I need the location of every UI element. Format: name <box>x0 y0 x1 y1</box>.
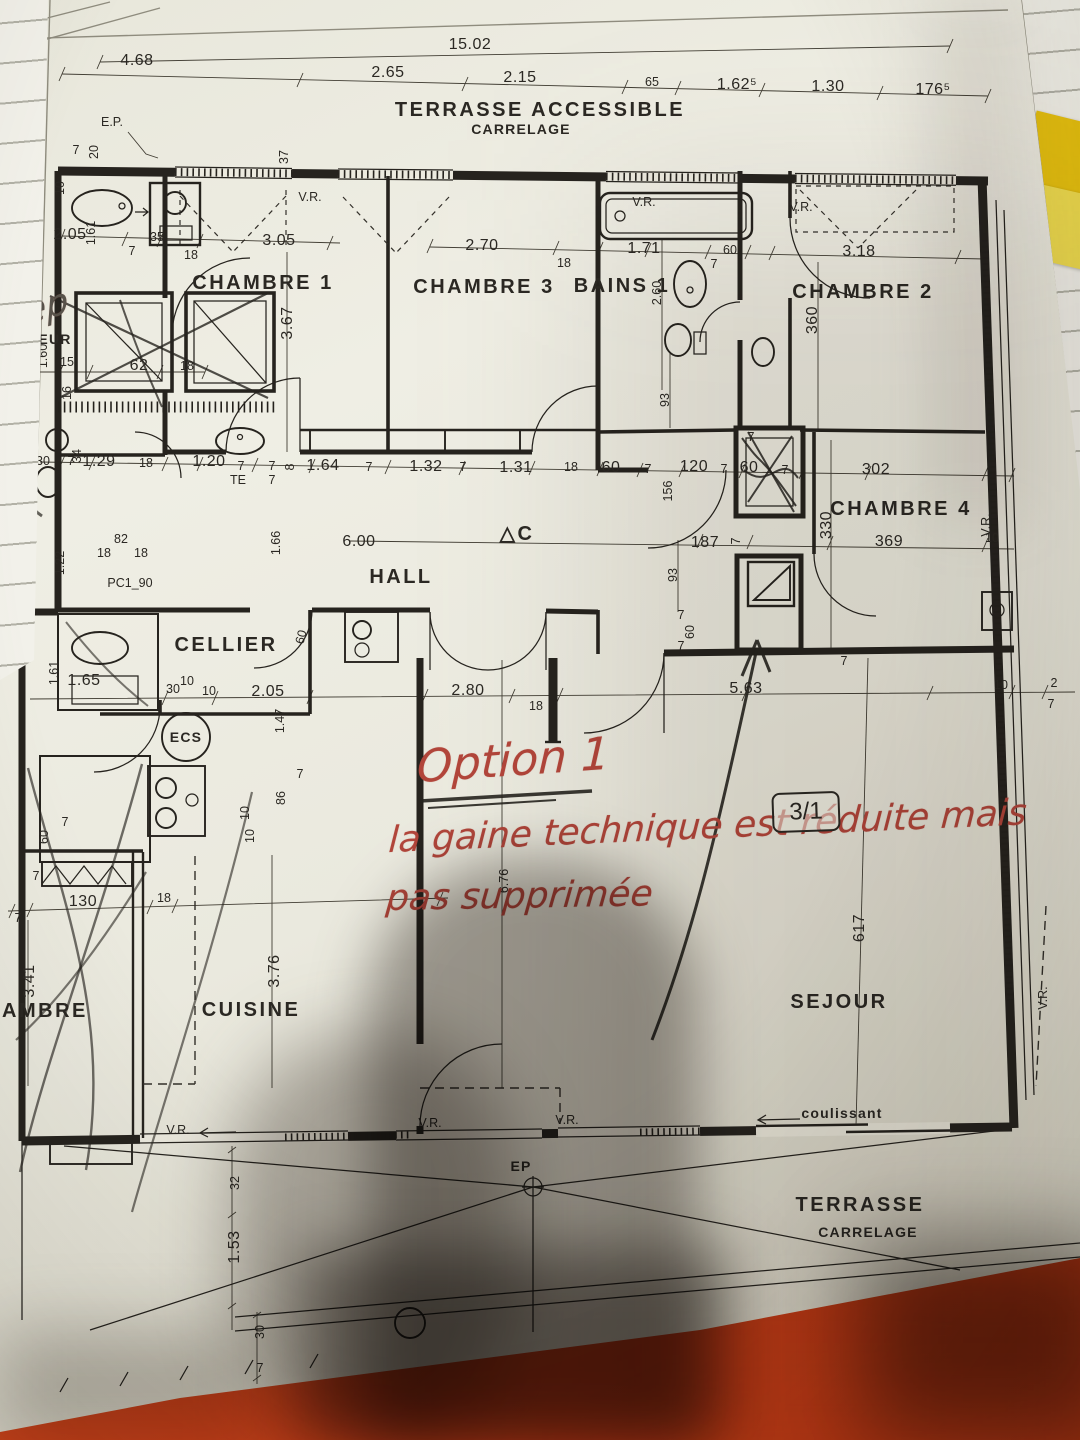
dimension-label: 1.62⁵ <box>717 76 757 93</box>
dimension-label: 60 <box>293 628 310 645</box>
dimension-label: 16 <box>60 386 74 400</box>
dimension-label: 7 <box>645 462 652 476</box>
dimension-label: 7 <box>748 430 755 444</box>
room-label: CHAMBRE 4 <box>830 498 971 520</box>
dimension-label: 7 <box>33 869 40 883</box>
dimension-label: 1.30 <box>811 78 844 95</box>
plan-label: CARRELAGE <box>818 1224 917 1240</box>
dimension-label: 32 <box>228 1176 242 1190</box>
room-label: CHAMBRE 3 <box>413 276 554 298</box>
dimension-label: 7 <box>1048 697 1055 711</box>
dimension-label: 7 <box>460 460 467 474</box>
plan-reference-box: 3/1 <box>771 791 840 833</box>
dimension-label: V.R. <box>166 1123 189 1137</box>
room-label: SEJOUR <box>790 991 887 1013</box>
dimension-label: 7 <box>782 463 789 477</box>
handwritten-note-line2: pas supprimée <box>384 873 654 919</box>
dimension-label: 6.00 <box>342 533 375 550</box>
dimension-label: V.R. <box>418 1116 441 1130</box>
dimension-label: 1.71 <box>627 240 660 257</box>
dimension-label: 93 <box>658 393 672 407</box>
dimension-label: 369 <box>875 533 903 550</box>
dimension-label: V.R. <box>632 195 655 209</box>
dimension-label: 60 <box>723 243 737 257</box>
dimension-label: E.P. <box>101 115 123 129</box>
dimension-label: 86 <box>274 791 288 805</box>
plan-paper: 15.024.682.652.15651.62⁵1.30176⁵TERRASSE… <box>0 0 1080 1440</box>
dimension-label: 10 <box>53 181 67 195</box>
room-label: △C <box>499 523 535 545</box>
dimension-label: 10 <box>985 531 999 545</box>
dimension-label: 617 <box>851 914 868 942</box>
dimension-label: 15.02 <box>449 36 492 53</box>
dimension-label: 130 <box>69 893 97 910</box>
dimension-label: 18 <box>180 359 194 373</box>
dimension-label: 10 <box>994 678 1008 692</box>
dimension-label: 3.41 <box>21 964 38 997</box>
dimension-label: TE <box>230 473 246 487</box>
dimension-label: 18 <box>97 546 111 560</box>
room-label: CHAMBRE <box>0 1000 88 1022</box>
room-label: CHAMBRE 1 <box>192 272 333 294</box>
dimension-label: 60 <box>602 459 621 476</box>
plan-label: CARRELAGE <box>471 121 570 137</box>
dimension-label: 62 <box>130 357 149 374</box>
dimension-label: 18 <box>564 460 578 474</box>
dimension-label: 7 <box>269 473 276 487</box>
dimension-label: 2.65 <box>371 64 404 81</box>
dimension-label: V.R. <box>555 1113 578 1127</box>
dimension-label: 1.64 <box>306 457 339 474</box>
dimension-label: 18 <box>529 699 543 713</box>
dimension-label: 34 <box>70 449 84 463</box>
dimension-label: 7 <box>678 608 685 622</box>
dimension-label: 2.05 <box>251 683 284 700</box>
dimension-label: 7 <box>62 815 69 829</box>
dimension-label: 1.61 <box>47 661 61 685</box>
dimension-label: 60 <box>37 830 51 844</box>
dimension-label: 7 <box>721 462 728 476</box>
dimension-label: 1.53 <box>226 1230 243 1263</box>
dimension-label: 18 <box>184 248 198 262</box>
dimension-label: 2.60 <box>650 281 664 305</box>
dimension-label: 65 <box>645 75 659 89</box>
dimension-label: PC1_90 <box>107 576 152 590</box>
dimension-label: 1.31 <box>499 459 532 476</box>
dimension-label: 2.70 <box>465 237 498 254</box>
dimension-label: 7 <box>73 143 80 157</box>
dimension-label: 2.80 <box>451 682 484 699</box>
dimension-label: V.R. <box>1036 986 1050 1009</box>
dimension-label: 60 <box>740 459 759 476</box>
dimension-label: 7 <box>269 459 276 473</box>
dimension-label: 35 <box>150 230 164 244</box>
dimension-label: 176⁵ <box>915 81 950 98</box>
dimension-label: 7 <box>257 1361 264 1375</box>
dimension-label: 10 <box>202 684 216 698</box>
dimension-label: 7 <box>366 460 373 474</box>
dimension-label: 7 <box>729 537 743 544</box>
dimension-label: 2 <box>1051 676 1058 690</box>
room-label: HALL <box>369 566 432 588</box>
dimension-label: 1.20 <box>192 453 225 470</box>
dimension-label: 20 <box>87 145 101 159</box>
room-label: CELLIER <box>174 634 277 656</box>
dimension-label: 3.67 <box>279 306 296 339</box>
room-label: CUISINE <box>202 999 301 1021</box>
dimension-label: 7 <box>841 654 848 668</box>
dimension-label: 330 <box>818 511 835 539</box>
dimension-label: 10 <box>238 806 252 820</box>
dimension-label: 5.63 <box>729 680 762 697</box>
dimension-label: 18 <box>134 546 148 560</box>
dimension-label: 1.22 <box>53 551 67 575</box>
room-label: CHAMBRE 2 <box>792 281 933 303</box>
dimension-label: 7 <box>711 257 718 271</box>
dimension-label: 1.29 <box>82 453 115 470</box>
dimension-label: 93 <box>666 568 680 582</box>
plan-label: ECS <box>170 729 202 745</box>
dimension-label: 1.66 <box>269 531 283 555</box>
dimension-label: 1.65 <box>67 672 100 689</box>
dimension-label: 30 <box>166 682 180 696</box>
dimension-label: 4.68 <box>120 52 153 69</box>
dimension-label: 3.76 <box>266 954 283 987</box>
room-label: TERRASSE ACCESSIBLE <box>395 99 685 121</box>
dimension-label: 187 <box>691 534 719 551</box>
dimension-label: 37 <box>277 150 291 164</box>
dimension-label: V.R. <box>298 190 321 204</box>
dimension-label: 7 <box>15 911 22 925</box>
door-arcs <box>94 218 876 1126</box>
room-label: TERRASSE <box>796 1194 925 1216</box>
dimension-label: 2.15 <box>503 69 536 86</box>
dimension-label: 302 <box>862 461 890 478</box>
dimension-label: 3.18 <box>842 243 875 260</box>
dimension-label: 1.61 <box>84 221 98 245</box>
dimension-label: 1.32 <box>409 458 442 475</box>
dimension-label: 7 <box>297 767 304 781</box>
floorplan-drawing: 15.024.682.652.15651.62⁵1.30176⁵TERRASSE… <box>0 0 1080 1440</box>
dimension-label: 10 <box>243 829 257 843</box>
dimension-label: 360 <box>804 306 821 334</box>
dimension-label: 18 <box>139 456 153 470</box>
dimension-label: 7 <box>129 244 136 258</box>
dimension-label: 10 <box>180 674 194 688</box>
dimension-label: 18 <box>157 891 171 905</box>
dimension-label: V.R. <box>789 200 812 214</box>
dimension-label: 3.05 <box>262 232 295 249</box>
dimension-label: 7 <box>678 639 685 653</box>
dimension-label: 60 <box>683 625 697 639</box>
dimension-label: 18 <box>557 256 571 270</box>
dimension-label: 15 <box>60 355 74 369</box>
dimension-label: 7 <box>238 459 245 473</box>
plan-label: coulissant <box>801 1105 882 1121</box>
photo-of-floorplan: 15.024.682.652.15651.62⁵1.30176⁵TERRASSE… <box>0 0 1080 1440</box>
dimension-label: 156 <box>661 481 675 502</box>
dimension-label: 30 <box>253 1325 267 1339</box>
plan-label: EP <box>510 1158 531 1174</box>
dimension-label: 82 <box>114 532 128 546</box>
dimension-label: 1.47 <box>273 709 287 733</box>
dimension-label: 8 <box>283 463 297 470</box>
dimension-label: 120 <box>680 458 708 475</box>
dimension-label: 2.05 <box>53 226 86 243</box>
